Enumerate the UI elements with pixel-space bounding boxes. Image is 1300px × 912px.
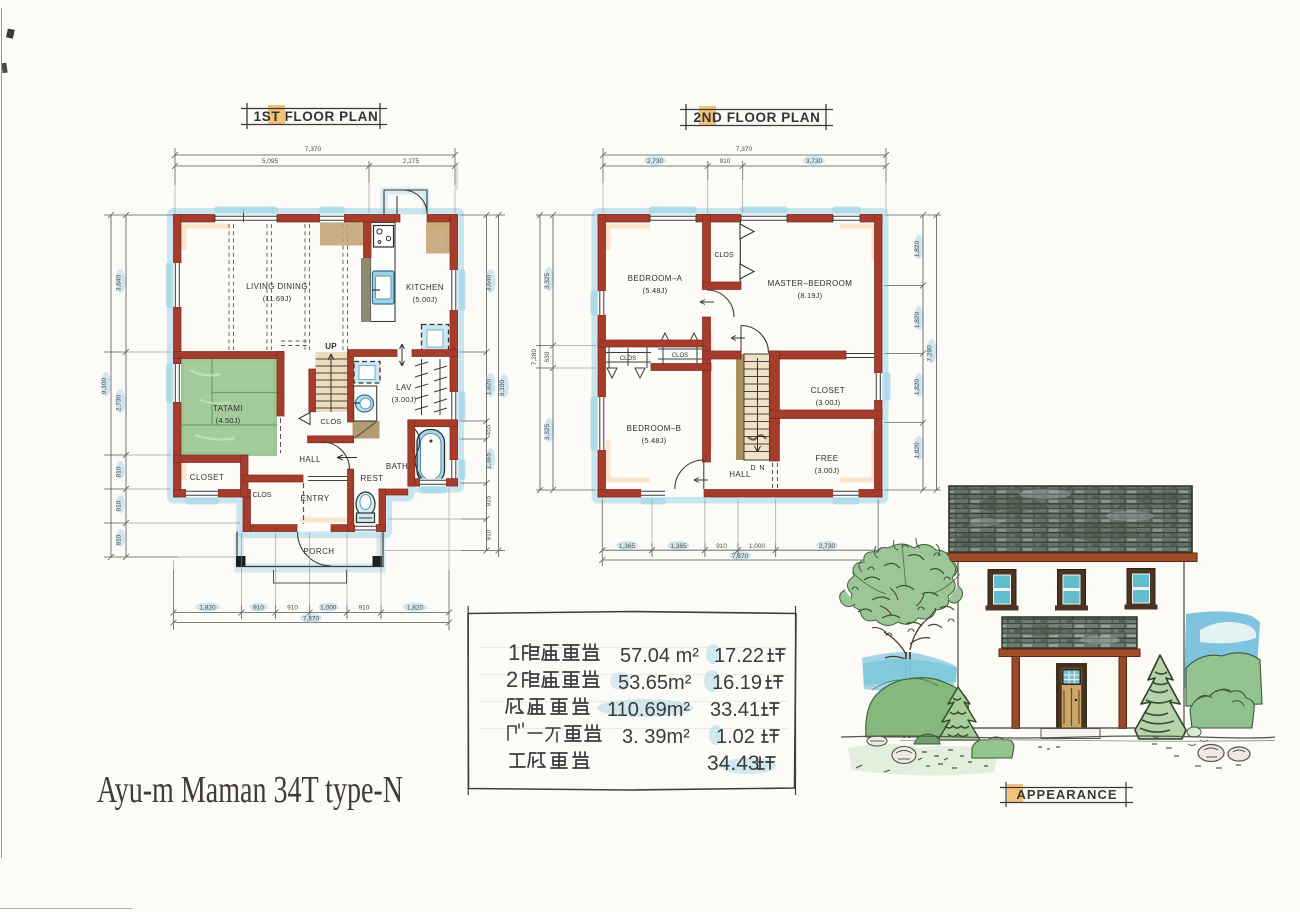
svg-text:KITCHEN: KITCHEN bbox=[406, 283, 444, 292]
svg-text:BEDROOM–A: BEDROOM–A bbox=[628, 274, 683, 283]
svg-text:CLOS: CLOS bbox=[320, 417, 341, 426]
svg-text:1,000: 1,000 bbox=[320, 605, 337, 612]
svg-text:CLOS: CLOS bbox=[620, 356, 636, 362]
svg-text:16.19: 16.19 bbox=[712, 672, 762, 694]
svg-text:(8.19J): (8.19J) bbox=[798, 291, 823, 300]
svg-text:CLOS: CLOS bbox=[672, 353, 688, 359]
svg-text:Ayu-m Maman 34T type-N: Ayu-m Maman 34T type-N bbox=[97, 769, 403, 811]
svg-text:7,280: 7,280 bbox=[927, 345, 934, 362]
svg-text:TATAMI: TATAMI bbox=[213, 404, 243, 413]
svg-text:53.65m²: 53.65m² bbox=[618, 672, 692, 694]
svg-text:9,100: 9,100 bbox=[499, 379, 506, 396]
svg-text:CLOSET: CLOSET bbox=[811, 386, 845, 395]
svg-text:(5.00J): (5.00J) bbox=[413, 295, 438, 304]
svg-text:HALL: HALL bbox=[299, 455, 321, 464]
svg-text:1,820: 1,820 bbox=[199, 605, 216, 612]
svg-text:1.02: 1.02 bbox=[716, 726, 755, 748]
svg-text:BEDROOM–B: BEDROOM–B bbox=[627, 424, 682, 433]
svg-text:3,640: 3,640 bbox=[116, 274, 123, 291]
svg-text:2,730: 2,730 bbox=[819, 543, 836, 550]
svg-text:UP: UP bbox=[325, 342, 337, 351]
svg-text:REST: REST bbox=[361, 474, 384, 483]
svg-text:7,280: 7,280 bbox=[531, 348, 538, 365]
svg-text:33.41: 33.41 bbox=[710, 699, 760, 721]
svg-text:ENTRY: ENTRY bbox=[301, 494, 330, 503]
svg-text:910: 910 bbox=[116, 534, 123, 545]
svg-text:(3.00J): (3.00J) bbox=[816, 398, 841, 407]
svg-text:910: 910 bbox=[253, 605, 264, 612]
svg-text:1,365: 1,365 bbox=[670, 543, 687, 550]
svg-text:110.69m²: 110.69m² bbox=[607, 699, 690, 721]
svg-text:2,275: 2,275 bbox=[403, 158, 420, 165]
svg-text:1,000: 1,000 bbox=[749, 543, 766, 550]
svg-text:D N: D N bbox=[750, 465, 765, 472]
svg-text:1: 1 bbox=[508, 640, 520, 665]
svg-text:910: 910 bbox=[359, 605, 370, 612]
svg-text:9,100: 9,100 bbox=[101, 377, 108, 394]
svg-text:3,325: 3,325 bbox=[544, 272, 551, 289]
svg-text:7,370: 7,370 bbox=[732, 553, 749, 560]
svg-text:57.04 m²: 57.04 m² bbox=[620, 645, 699, 667]
svg-text:1,820: 1,820 bbox=[486, 378, 493, 395]
svg-text:1,365: 1,365 bbox=[619, 543, 636, 550]
svg-text:(5.48J): (5.48J) bbox=[642, 436, 667, 445]
svg-text:CLOSET: CLOSET bbox=[190, 473, 224, 482]
svg-text:3. 39m²: 3. 39m² bbox=[622, 726, 690, 748]
svg-text:910: 910 bbox=[287, 605, 298, 612]
svg-text:910: 910 bbox=[720, 158, 731, 165]
svg-text:2,730: 2,730 bbox=[116, 394, 123, 411]
svg-text:MASTER–BEDROOM: MASTER–BEDROOM bbox=[768, 279, 853, 288]
svg-text:CLOS: CLOS bbox=[252, 492, 271, 499]
svg-text:FREE: FREE bbox=[816, 454, 839, 463]
svg-text:1,820: 1,820 bbox=[914, 378, 921, 395]
svg-text:(5.48J): (5.48J) bbox=[643, 286, 668, 295]
svg-text:APPEARANCE: APPEARANCE bbox=[1016, 787, 1117, 802]
svg-text:7,370: 7,370 bbox=[736, 146, 753, 153]
svg-text:(3.00J): (3.00J) bbox=[392, 395, 417, 404]
svg-text:7,370: 7,370 bbox=[305, 146, 322, 153]
svg-text:3,730: 3,730 bbox=[806, 158, 823, 165]
svg-text:BATH: BATH bbox=[386, 462, 408, 471]
svg-text:34.43: 34.43 bbox=[707, 752, 760, 775]
svg-text:1,820: 1,820 bbox=[914, 311, 921, 328]
svg-text:910: 910 bbox=[716, 543, 727, 550]
svg-text:LAV: LAV bbox=[396, 383, 412, 392]
svg-text:(3.00J): (3.00J) bbox=[815, 466, 840, 475]
svg-text:910: 910 bbox=[116, 500, 123, 511]
svg-text:3,325: 3,325 bbox=[544, 423, 551, 440]
svg-text:PORCH: PORCH bbox=[304, 547, 335, 556]
svg-text:1ST FLOOR PLAN: 1ST FLOOR PLAN bbox=[254, 109, 379, 124]
svg-text:(4.50J): (4.50J) bbox=[216, 416, 241, 425]
svg-text:1,820: 1,820 bbox=[407, 605, 424, 612]
svg-text:630: 630 bbox=[544, 351, 551, 362]
svg-text:2,730: 2,730 bbox=[647, 158, 664, 165]
svg-text:2: 2 bbox=[506, 667, 518, 692]
svg-text:3,640: 3,640 bbox=[486, 274, 493, 291]
svg-text:HALL: HALL bbox=[729, 470, 751, 479]
svg-text:CLOS: CLOS bbox=[714, 252, 733, 259]
svg-text:5,095: 5,095 bbox=[262, 158, 279, 165]
svg-text:LIVING DINING: LIVING DINING bbox=[246, 282, 308, 291]
svg-text:1,365: 1,365 bbox=[486, 452, 493, 469]
svg-text:1,820: 1,820 bbox=[914, 240, 921, 257]
svg-text:17.22: 17.22 bbox=[714, 645, 764, 667]
svg-text:915: 915 bbox=[486, 495, 493, 506]
svg-text:7,370: 7,370 bbox=[303, 616, 320, 623]
svg-text:1,820: 1,820 bbox=[914, 442, 921, 459]
svg-text:910: 910 bbox=[116, 466, 123, 477]
svg-text:455: 455 bbox=[486, 424, 493, 435]
svg-text:(11.69J): (11.69J) bbox=[263, 294, 292, 303]
svg-text:2ND FLOOR PLAN: 2ND FLOOR PLAN bbox=[694, 110, 821, 125]
svg-text:910: 910 bbox=[486, 529, 493, 540]
